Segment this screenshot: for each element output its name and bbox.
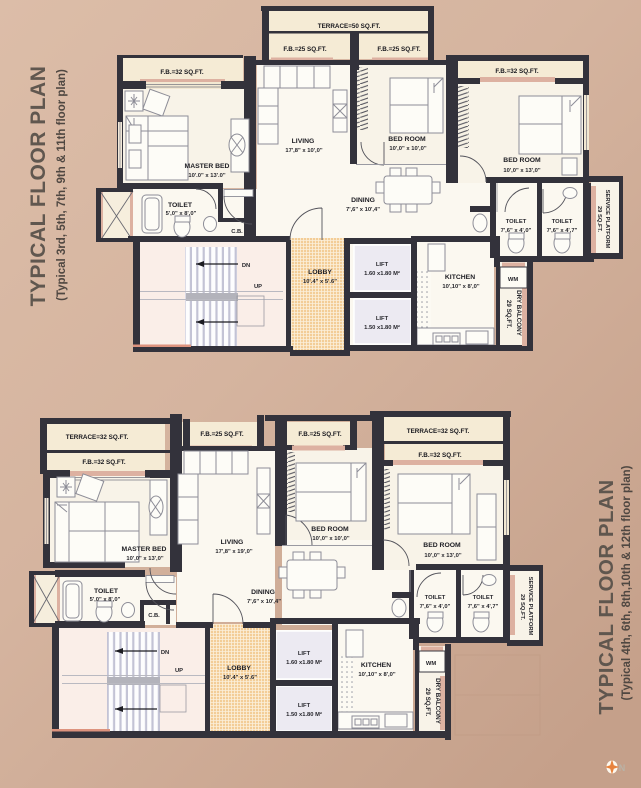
svg-text:F.B.=25 SQ.FT.: F.B.=25 SQ.FT. [200,431,243,438]
svg-text:WM: WM [508,277,518,283]
svg-text:TOILET: TOILET [473,595,494,601]
svg-text:LIFT: LIFT [376,316,389,322]
svg-text:F.B.=25 SQ.FT.: F.B.=25 SQ.FT. [377,46,420,53]
svg-text:DN: DN [161,650,169,656]
svg-text:TYPICAL FLOOR PLAN: TYPICAL FLOOR PLAN [595,479,618,714]
svg-text:10',10" x 8',0": 10',10" x 8',0" [358,672,396,678]
svg-text:7',6" x 4',7": 7',6" x 4',7" [468,604,499,610]
svg-text:SERVICE PLATFORM: SERVICE PLATFORM [604,190,610,249]
svg-text:1.50 x1.80 M²: 1.50 x1.80 M² [364,324,400,331]
svg-text:7',6" x 4',0": 7',6" x 4',0" [501,228,532,234]
svg-text:10',0" x 10',0": 10',0" x 10',0" [312,536,350,542]
svg-text:N: N [619,763,626,773]
svg-text:F.B.=25 SQ.FT.: F.B.=25 SQ.FT. [283,46,326,53]
svg-text:7',6" x 10',4": 7',6" x 10',4" [346,207,380,213]
svg-text:F.B.=32 SQ.FT.: F.B.=32 SQ.FT. [418,452,461,459]
svg-text:1.50 x1.80 M²: 1.50 x1.80 M² [286,711,322,718]
svg-text:TERRACE=50 SQ.FT.: TERRACE=50 SQ.FT. [318,23,381,30]
svg-text:WM: WM [426,661,436,667]
svg-text:DN: DN [242,263,250,269]
svg-text:10',0" x 13',0": 10',0" x 13',0" [126,556,164,562]
svg-text:C.B.: C.B. [148,613,160,619]
svg-text:LOBBY: LOBBY [227,665,251,672]
svg-text:TOILET: TOILET [94,588,119,595]
svg-text:10',0" x 10',0": 10',0" x 10',0" [389,146,427,152]
svg-text:TOILET: TOILET [425,595,446,601]
svg-text:29 SQ.FT.: 29 SQ.FT. [505,300,512,329]
svg-text:F.B.=32 SQ.FT.: F.B.=32 SQ.FT. [82,459,125,466]
svg-text:TYPICAL FLOOR PLAN: TYPICAL FLOOR PLAN [27,66,50,307]
svg-text:TOILET: TOILET [506,219,527,225]
svg-text:LIFT: LIFT [298,651,311,657]
svg-text:LIVING: LIVING [221,539,244,546]
svg-text:DINING: DINING [351,197,375,204]
svg-text:DRY BALCONY: DRY BALCONY [515,290,522,337]
svg-text:F.B.=32 SQ.FT.: F.B.=32 SQ.FT. [495,68,538,75]
svg-text:MASTER BED: MASTER BED [185,163,230,170]
svg-text:7',6" x 4',7": 7',6" x 4',7" [547,228,578,234]
svg-text:29 SQ.FT.: 29 SQ.FT. [596,206,602,232]
svg-text:BED ROOM: BED ROOM [423,542,461,549]
svg-text:KITCHEN: KITCHEN [445,274,475,281]
svg-text:BED ROOM: BED ROOM [388,136,426,143]
svg-text:LIFT: LIFT [376,262,389,268]
svg-text:10'.4" x 5'.6": 10'.4" x 5'.6" [303,279,337,285]
svg-text:10',0" x 13',0": 10',0" x 13',0" [503,168,541,174]
svg-text:17',8" x 10',0": 17',8" x 10',0" [285,148,323,154]
svg-text:BED ROOM: BED ROOM [311,526,349,533]
svg-text:1.60 x1.80 M²: 1.60 x1.80 M² [364,270,400,277]
svg-text:5',0" x 8',0": 5',0" x 8',0" [166,211,197,217]
svg-text:5',0" x 8',0": 5',0" x 8',0" [90,597,121,603]
svg-text:(Typical 3rd, 5th, 7th, 9th &: (Typical 3rd, 5th, 7th, 9th & 11th floor… [56,69,68,301]
svg-text:UP: UP [254,284,262,290]
svg-text:TOILET: TOILET [552,219,573,225]
svg-text:1.60 x1.80 M²: 1.60 x1.80 M² [286,659,322,666]
svg-text:UP: UP [175,668,183,674]
svg-text:7',6" x 10',4": 7',6" x 10',4" [247,599,281,605]
svg-text:29 SQ.FT.: 29 SQ.FT. [519,594,525,620]
svg-text:(Typical 4th, 6th, 8th,10th &: (Typical 4th, 6th, 8th,10th & 12th floor… [621,465,633,700]
svg-text:LIFT: LIFT [298,703,311,709]
svg-text:10',0" x 13',0": 10',0" x 13',0" [424,553,462,559]
svg-text:10'.4" x 5'.6": 10'.4" x 5'.6" [223,675,257,681]
svg-text:TERRACE=32 SQ.FT.: TERRACE=32 SQ.FT. [407,428,470,435]
svg-text:BED ROOM: BED ROOM [503,157,541,164]
svg-text:29 SQ.FT.: 29 SQ.FT. [424,688,431,717]
svg-text:7',6" x 4',0": 7',6" x 4',0" [420,604,451,610]
svg-text:LOBBY: LOBBY [308,269,332,276]
svg-text:TERRACE=32 SQ.FT.: TERRACE=32 SQ.FT. [66,434,129,441]
svg-text:C.B.: C.B. [231,229,243,235]
svg-text:TOILET: TOILET [168,202,193,209]
svg-text:KITCHEN: KITCHEN [361,662,391,669]
svg-text:10',10" x 8',0": 10',10" x 8',0" [442,284,480,290]
svg-text:10'.0" x 13'.0": 10'.0" x 13'.0" [188,173,226,179]
svg-text:17',8" x 19',0": 17',8" x 19',0" [215,549,253,555]
svg-text:F.B.=32 SQ.FT.: F.B.=32 SQ.FT. [160,69,203,76]
svg-text:DINING: DINING [251,589,275,596]
svg-text:F.B.=25 SQ.FT.: F.B.=25 SQ.FT. [298,431,341,438]
svg-text:MASTER BED: MASTER BED [122,546,167,553]
svg-text:SERVICE PLATFORM: SERVICE PLATFORM [527,577,533,636]
svg-text:LIVING: LIVING [292,138,315,145]
svg-text:DRY BALCONY: DRY BALCONY [434,678,441,725]
